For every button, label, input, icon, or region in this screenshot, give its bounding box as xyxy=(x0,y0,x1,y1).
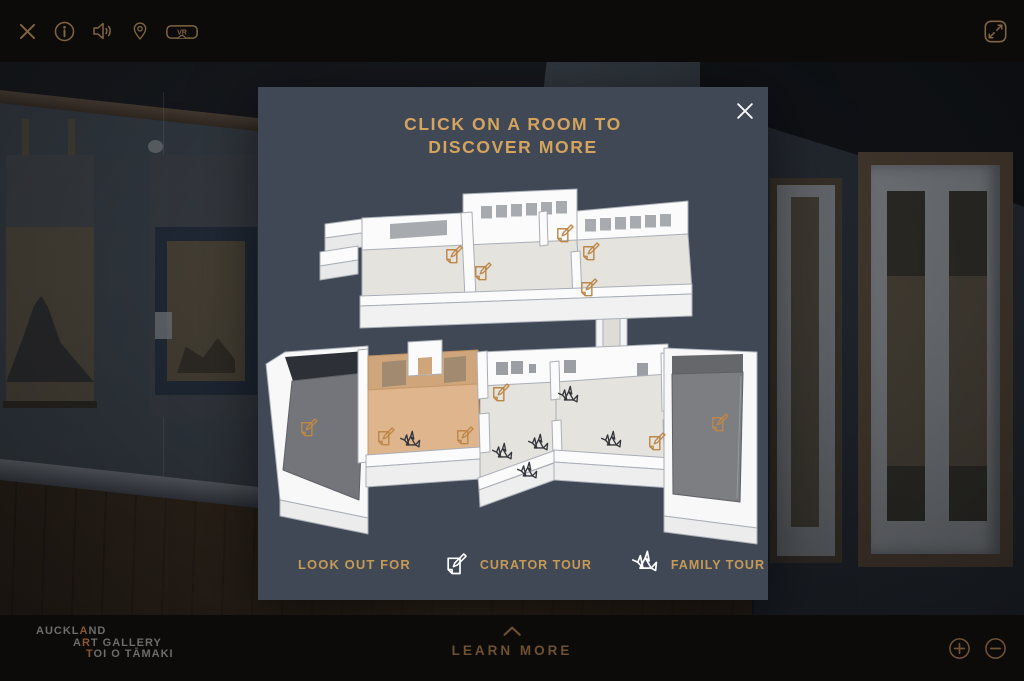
top-toolbar: VR xyxy=(0,0,1024,62)
learn-more-button[interactable]: LEARN MORE xyxy=(446,623,579,659)
plus-icon xyxy=(948,637,971,660)
legend-item-curator: CURATOR TOUR xyxy=(442,551,592,578)
lower-gallery-block xyxy=(266,340,757,544)
info-icon xyxy=(53,20,76,43)
upper-gallery-block xyxy=(320,189,692,328)
close-icon xyxy=(17,21,38,42)
minus-icon xyxy=(984,637,1007,660)
fullscreen-button[interactable] xyxy=(980,16,1011,47)
zoom-in-button[interactable] xyxy=(945,634,974,663)
legend-label: CURATOR TOUR xyxy=(480,558,592,572)
modal-close-button[interactable] xyxy=(732,98,758,124)
close-icon xyxy=(734,100,756,122)
bottom-bar: AUCKLAND ART GALLERY TOI O TĀMAKI LEARN … xyxy=(0,615,1024,681)
room-highlighted-group xyxy=(358,340,480,487)
audio-button[interactable] xyxy=(88,16,118,46)
location-pin-icon xyxy=(130,20,150,42)
legend-heading: LOOK OUT FOR xyxy=(298,557,411,572)
legend-label: FAMILY TOUR xyxy=(671,558,765,572)
floor-plan xyxy=(266,189,757,544)
zoom-controls xyxy=(945,615,1010,681)
close-tour-button[interactable] xyxy=(14,18,41,45)
zoom-out-button[interactable] xyxy=(981,634,1010,663)
audio-icon xyxy=(91,19,115,43)
map-button[interactable] xyxy=(127,17,153,45)
chevron-up-icon xyxy=(503,626,522,636)
auckland-art-gallery-logo: AUCKLAND ART GALLERY TOI O TĀMAKI xyxy=(36,626,174,661)
map-legend: LOOK OUT FOR CURATOR TOUR FAMILY TOUR xyxy=(298,549,765,580)
svg-text:VR: VR xyxy=(177,28,187,36)
legend-item-family: FAMILY TOUR xyxy=(629,549,765,580)
family-tour-icon xyxy=(629,549,660,580)
room-east-wing[interactable] xyxy=(672,372,743,502)
floor-plan-map xyxy=(258,87,768,600)
fullscreen-icon xyxy=(983,19,1008,44)
room-map-dialog: CLICK ON A ROOM TO DISCOVER MORE LOOK OU… xyxy=(258,87,768,600)
vr-mode-button[interactable]: VR xyxy=(162,17,202,46)
curator-tour-icon xyxy=(442,551,469,578)
info-button[interactable] xyxy=(50,17,79,46)
vr-headset-icon: VR xyxy=(165,20,199,43)
modal-title: CLICK ON A ROOM TO DISCOVER MORE xyxy=(258,87,768,159)
